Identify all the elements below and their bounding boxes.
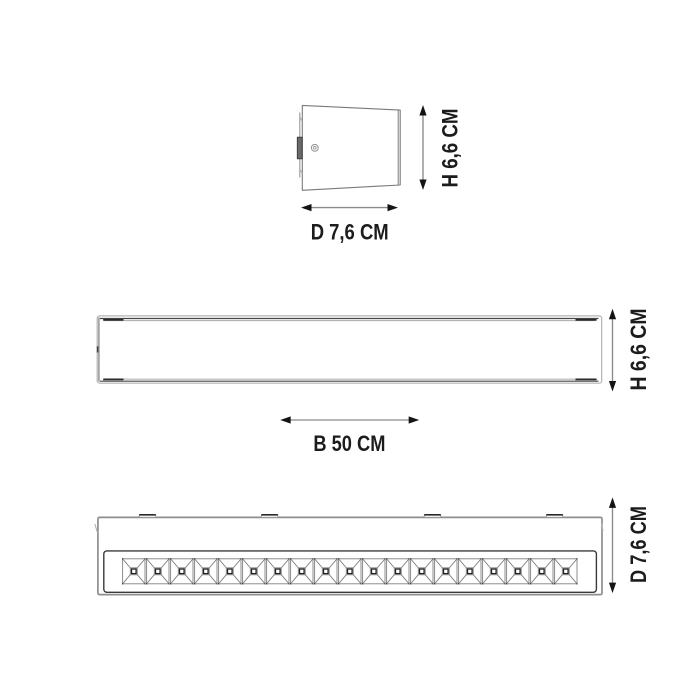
svg-text:H 6,6 CM: H 6,6 CM — [626, 309, 651, 391]
svg-text:H 6,6 CM: H 6,6 CM — [437, 109, 462, 188]
svg-text:B 50 CM: B 50 CM — [313, 431, 385, 456]
svg-text:D 7,6 CM: D 7,6 CM — [311, 219, 389, 244]
svg-text:D 7,6 CM: D 7,6 CM — [626, 506, 651, 583]
